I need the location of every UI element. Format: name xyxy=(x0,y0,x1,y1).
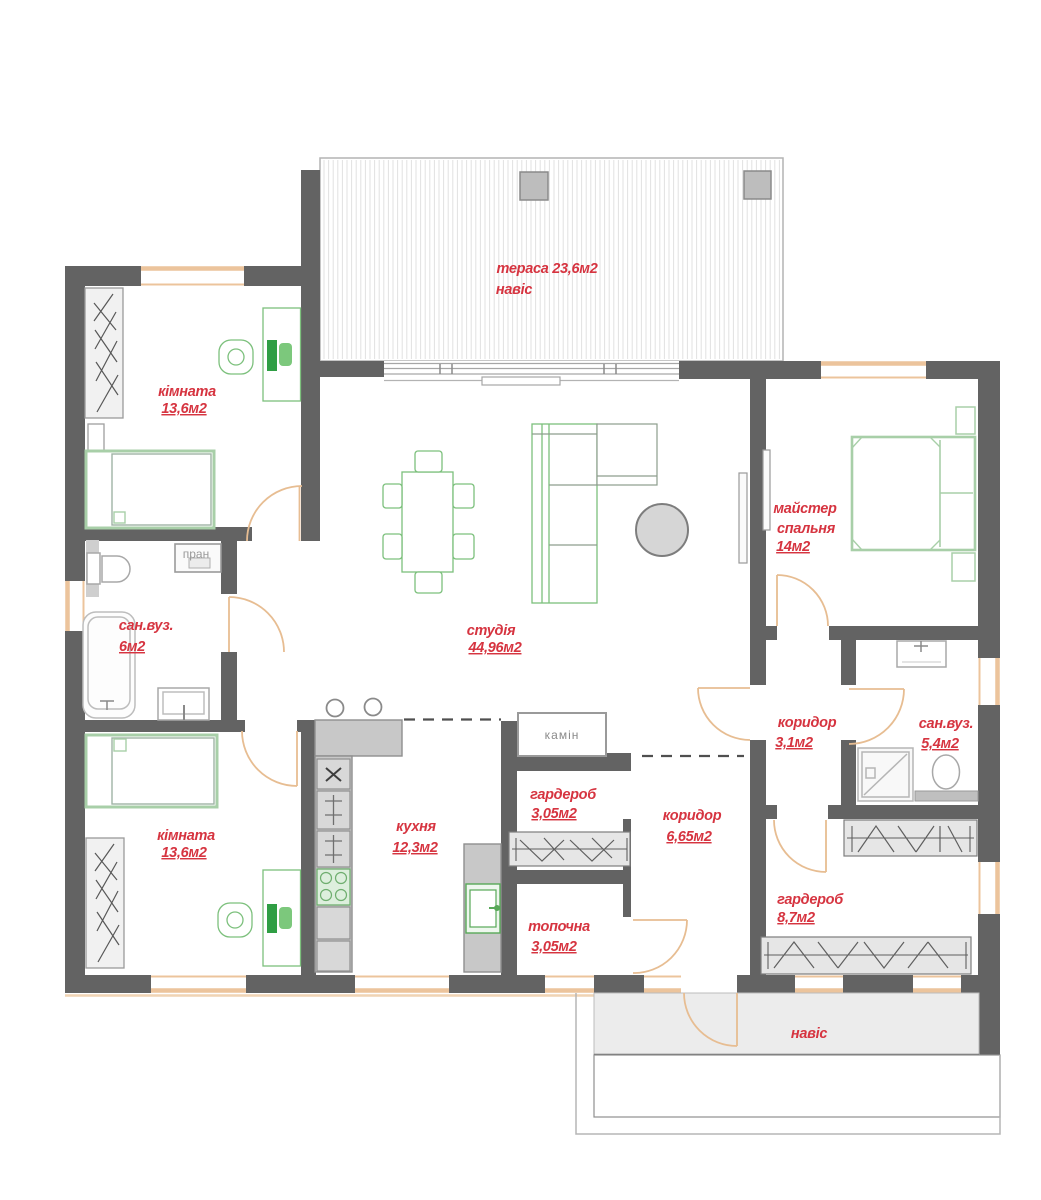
svg-text:14м2: 14м2 xyxy=(776,539,810,555)
svg-text:8,7м2: 8,7м2 xyxy=(777,910,815,926)
svg-text:тераса 23,6м2: тераса 23,6м2 xyxy=(497,261,598,277)
svg-text:коридор: коридор xyxy=(663,808,722,824)
svg-text:13,6м2: 13,6м2 xyxy=(161,845,206,861)
svg-text:кімната: кімната xyxy=(157,828,215,844)
svg-text:студія: студія xyxy=(467,623,516,639)
svg-text:3,05м2: 3,05м2 xyxy=(531,806,576,822)
svg-text:пран: пран xyxy=(183,547,209,561)
svg-text:3,1м2: 3,1м2 xyxy=(775,735,813,751)
svg-text:13,6м2: 13,6м2 xyxy=(161,401,206,417)
svg-text:5,4м2: 5,4м2 xyxy=(921,736,959,752)
svg-text:44,96м2: 44,96м2 xyxy=(468,640,522,656)
svg-text:камін: камін xyxy=(545,728,580,742)
svg-text:навіс: навіс xyxy=(791,1026,827,1042)
svg-text:6,65м2: 6,65м2 xyxy=(666,829,711,845)
svg-text:кухня: кухня xyxy=(396,819,436,835)
svg-text:сан.вуз.: сан.вуз. xyxy=(119,618,173,634)
svg-text:гардероб: гардероб xyxy=(530,787,597,803)
svg-text:гардероб: гардероб xyxy=(777,892,844,908)
svg-text:навіс: навіс xyxy=(496,282,532,298)
svg-text:6м2: 6м2 xyxy=(119,639,145,655)
svg-text:спальня: спальня xyxy=(777,521,836,537)
svg-text:12,3м2: 12,3м2 xyxy=(392,840,437,856)
svg-text:коридор: коридор xyxy=(778,715,837,731)
svg-text:кімната: кімната xyxy=(158,384,216,400)
svg-text:топочна: топочна xyxy=(528,919,590,935)
svg-text:сан.вуз.: сан.вуз. xyxy=(919,716,973,732)
svg-text:майстер: майстер xyxy=(773,501,837,517)
svg-text:3,05м2: 3,05м2 xyxy=(531,939,576,955)
